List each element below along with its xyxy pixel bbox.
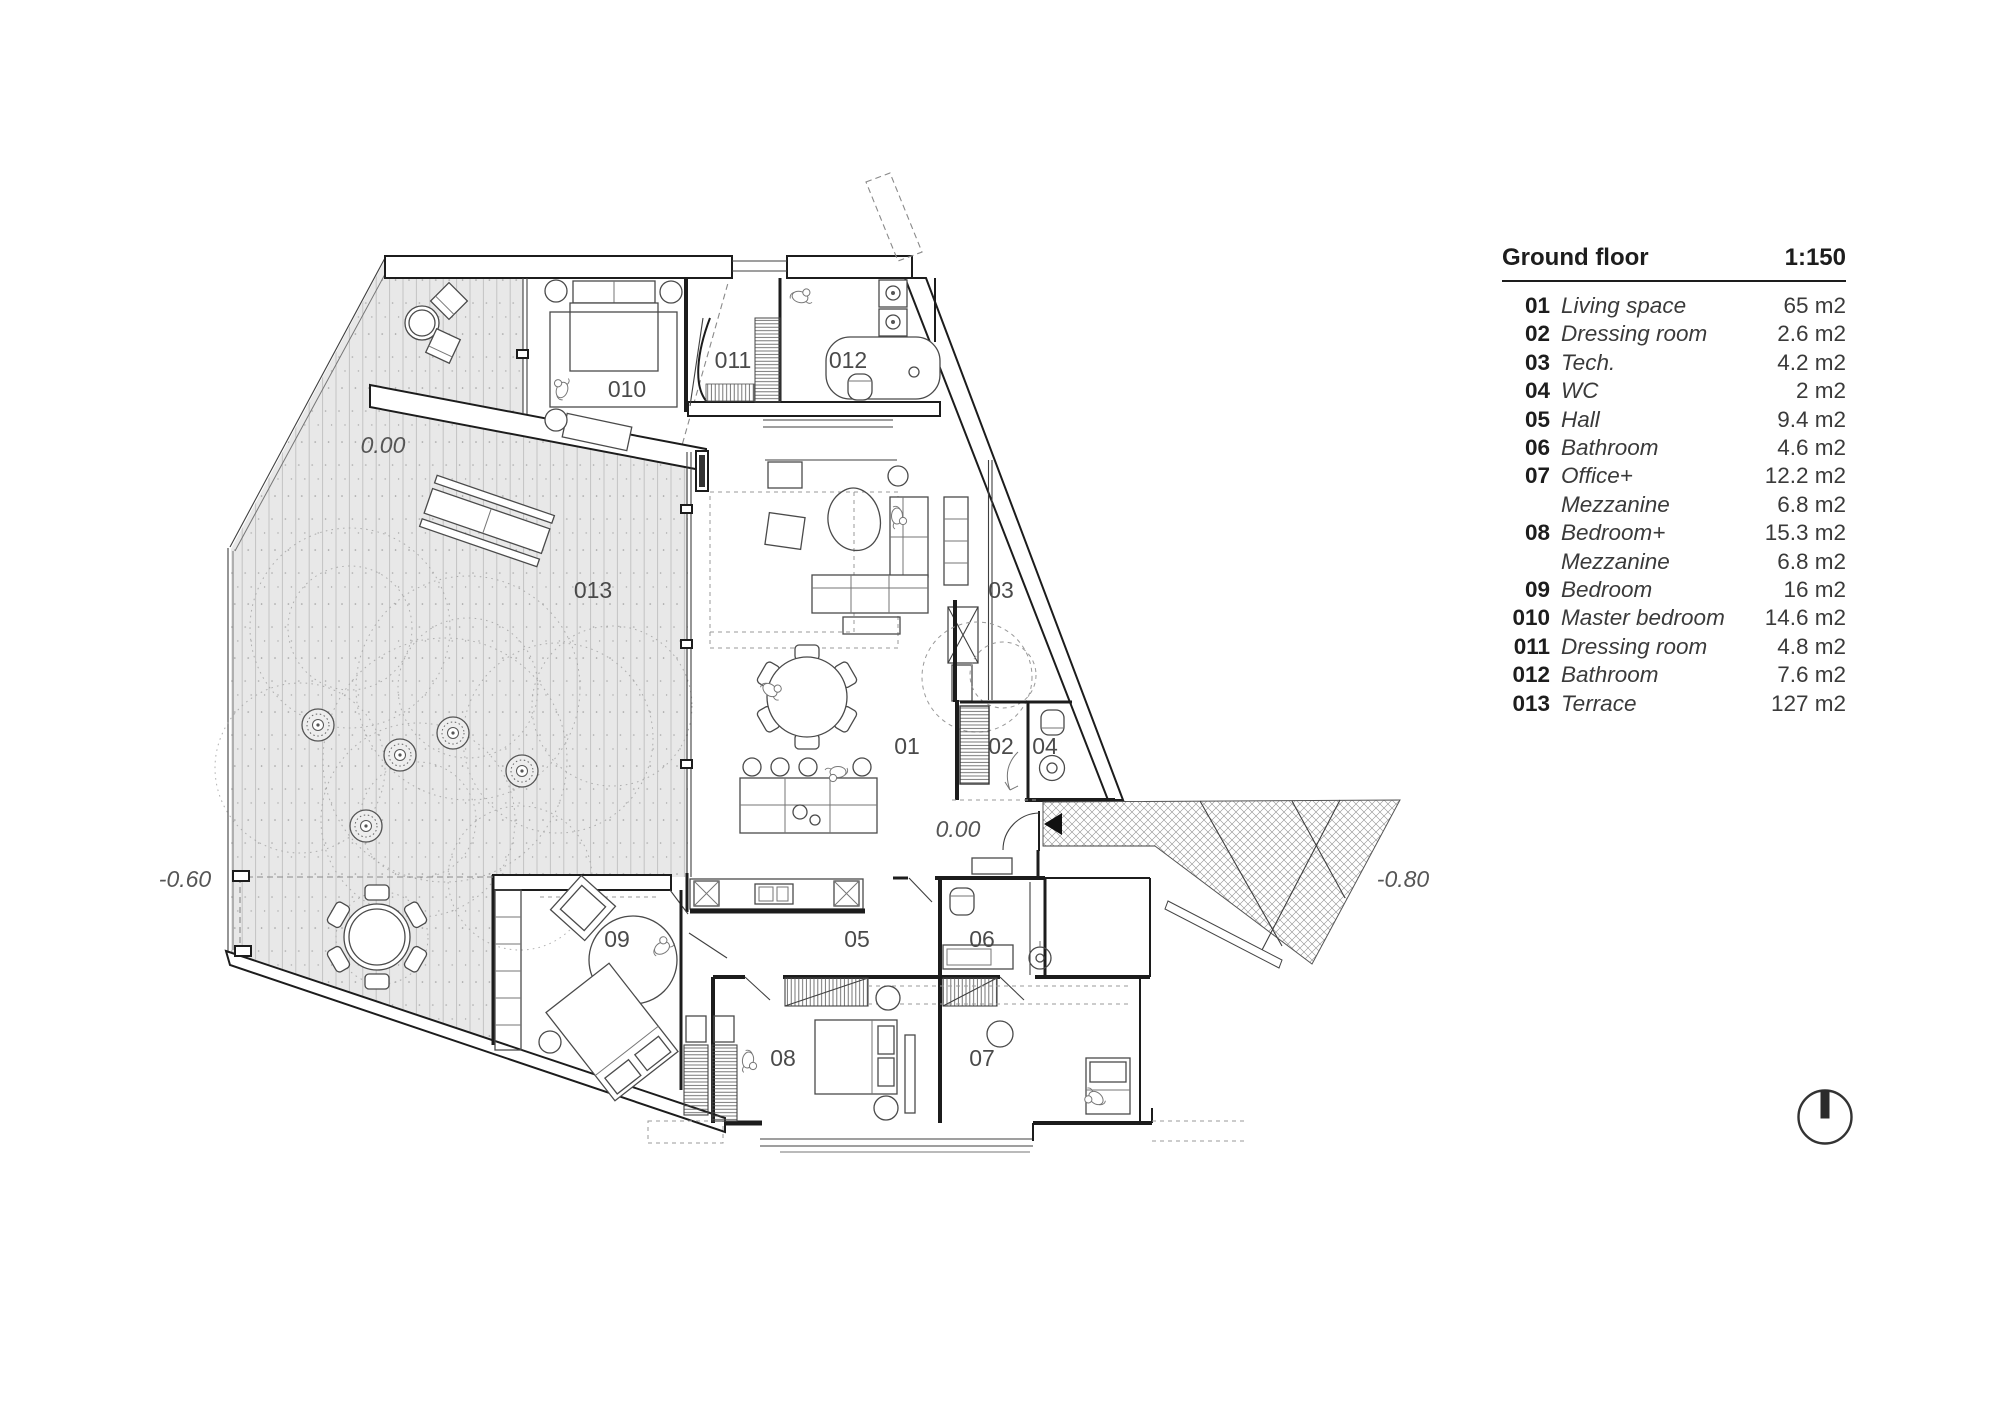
- legend-nm: WC: [1550, 377, 1796, 405]
- legend-no: 05: [1502, 406, 1550, 434]
- legend-row: 05Hall9.4 m2: [1502, 406, 1846, 434]
- rooms-03-02-04: [922, 460, 1115, 800]
- room-number-label: 012: [829, 347, 867, 373]
- room-number-label: 06: [969, 926, 995, 952]
- room-number-label: 09: [604, 926, 630, 952]
- room-number-label: 07: [969, 1045, 995, 1071]
- legend-no: 06: [1502, 434, 1550, 462]
- legend-title: Ground floor: [1502, 244, 1649, 272]
- room-number-label: 01: [894, 733, 920, 759]
- legend-row: 06Bathroom4.6 m2: [1502, 434, 1846, 462]
- room-01-living: [681, 452, 928, 877]
- legend-ar: 6.8 m2: [1777, 491, 1846, 519]
- level-label: 0.00: [361, 432, 406, 458]
- legend-ar: 2.6 m2: [1777, 320, 1846, 348]
- legend-ar: 12.2 m2: [1765, 462, 1846, 490]
- legend-scale: 1:150: [1785, 244, 1846, 272]
- room-number-label: 03: [988, 577, 1014, 603]
- legend-nm: Dressing room: [1550, 320, 1777, 348]
- legend-row: 03Tech.4.2 m2: [1502, 349, 1846, 377]
- legend-ar: 14.6 m2: [1765, 604, 1846, 632]
- legend-row: 013Terrace127 m2: [1502, 690, 1846, 718]
- legend-ar: 127 m2: [1771, 690, 1846, 718]
- legend-ar: 65 m2: [1783, 292, 1846, 320]
- legend-no: 01: [1502, 292, 1550, 320]
- rooms-08-07: [684, 977, 1140, 1123]
- legend-ar: 15.3 m2: [1765, 519, 1846, 547]
- room-number-label: 04: [1032, 733, 1058, 759]
- legend-no: 08: [1502, 519, 1550, 547]
- legend-ar: 4.6 m2: [1777, 434, 1846, 462]
- legend-nm: Dressing room: [1550, 633, 1777, 661]
- legend-nm: Mezzanine: [1550, 548, 1777, 576]
- legend-no: 012: [1502, 661, 1550, 689]
- legend-row: 011Dressing room4.8 m2: [1502, 633, 1846, 661]
- legend-ar: 4.2 m2: [1777, 349, 1846, 377]
- legend-nm: Bathroom: [1550, 661, 1777, 689]
- legend-rows: 01Living space65 m202Dressing room2.6 m2…: [1502, 282, 1846, 718]
- legend-nm: Bedroom+: [1550, 519, 1765, 547]
- legend-header: Ground floor 1:150: [1502, 244, 1846, 282]
- level-label: -0.80: [1377, 866, 1430, 892]
- north-arrow-icon: [1799, 1090, 1852, 1144]
- legend-nm: Bedroom: [1550, 576, 1783, 604]
- driveway-paving: [1043, 800, 1400, 968]
- room-number-label: 013: [574, 577, 612, 603]
- legend-row: 012Bathroom7.6 m2: [1502, 661, 1846, 689]
- legend-no: 09: [1502, 576, 1550, 604]
- legend-nm: Mezzanine: [1550, 491, 1777, 519]
- legend-ar: 9.4 m2: [1777, 406, 1846, 434]
- legend-ar: 2 m2: [1796, 377, 1846, 405]
- floor-plan-sheet: 010011012013030102040506090807 0.000.00-…: [0, 0, 2000, 1414]
- legend-row: 04WC2 m2: [1502, 377, 1846, 405]
- legend-no: 010: [1502, 604, 1550, 632]
- legend-nm: Hall: [1550, 406, 1777, 434]
- room-number-label: 05: [844, 926, 870, 952]
- legend-ar: 4.8 m2: [1777, 633, 1846, 661]
- legend-no: 07: [1502, 462, 1550, 490]
- room-number-label: 010: [608, 376, 646, 402]
- legend-ar: 16 m2: [1783, 576, 1846, 604]
- legend-nm: Bathroom: [1550, 434, 1777, 462]
- legend-ar: 7.6 m2: [1777, 661, 1846, 689]
- legend-nm: Terrace: [1550, 690, 1771, 718]
- legend-nm: Living space: [1550, 292, 1783, 320]
- legend-nm: Tech.: [1550, 349, 1777, 377]
- legend-nm: Master bedroom: [1550, 604, 1765, 632]
- kitchen-counter: [687, 873, 865, 912]
- level-label: -0.60: [159, 866, 212, 892]
- legend-nm: Office+: [1550, 462, 1765, 490]
- legend-no: 011: [1502, 633, 1550, 661]
- legend-no: 013: [1502, 690, 1550, 718]
- legend-no: 04: [1502, 377, 1550, 405]
- legend-row: Mezzanine6.8 m2: [1502, 548, 1846, 576]
- legend-row: 07Office+12.2 m2: [1502, 462, 1846, 490]
- legend-row: 08Bedroom+15.3 m2: [1502, 519, 1846, 547]
- level-label: 0.00: [936, 816, 981, 842]
- room-number-label: 02: [988, 733, 1014, 759]
- entry: [972, 811, 1039, 877]
- legend-row: 02Dressing room2.6 m2: [1502, 320, 1846, 348]
- legend-row: Mezzanine6.8 m2: [1502, 491, 1846, 519]
- legend-row: 09Bedroom16 m2: [1502, 576, 1846, 604]
- legend-ar: 6.8 m2: [1777, 548, 1846, 576]
- room-number-label: 011: [715, 347, 752, 373]
- room-09-bedroom: [493, 875, 688, 1101]
- legend-row: 010Master bedroom14.6 m2: [1502, 604, 1846, 632]
- legend-row: 01Living space65 m2: [1502, 292, 1846, 320]
- legend-no: 03: [1502, 349, 1550, 377]
- room-number-label: 08: [770, 1045, 796, 1071]
- legend: Ground floor 1:150 01Living space65 m202…: [1502, 244, 1846, 718]
- legend-no: 02: [1502, 320, 1550, 348]
